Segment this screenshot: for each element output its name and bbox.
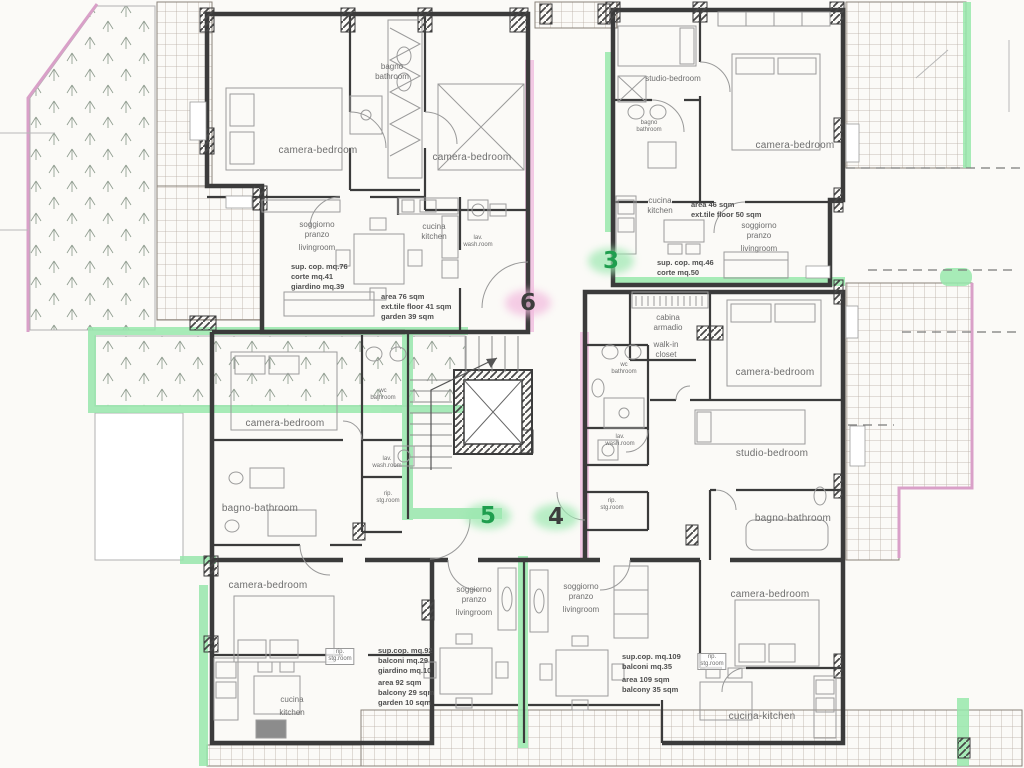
label-bedroom-w: camera-bedroom: [246, 418, 325, 430]
label-storage-w: rip.stg.room: [376, 491, 399, 506]
label-bath-ne: bagnobathroom: [636, 120, 661, 135]
label-living-s-left: soggiornopranzolivingroom: [456, 585, 492, 617]
label-bedroom-e: camera-bedroom: [736, 367, 815, 379]
label-storage-e: rip.stg.room: [600, 498, 623, 513]
label-washroom-w: lav.wash.room: [372, 456, 401, 471]
label-washroom-nw: lav.wash.room: [463, 235, 492, 250]
label-bath-e: bagno-bathroom: [755, 513, 831, 525]
label-studio-ne: studio-bedroom: [645, 74, 701, 84]
unit-badge-4: 4: [548, 504, 564, 530]
label-bedroom-ne: camera-bedroom: [756, 140, 835, 152]
label-bath-nw: bagnobathroom: [375, 62, 409, 82]
label-studio-e: studio-bedroom: [736, 448, 808, 460]
unit-badge-6: 6: [520, 290, 536, 316]
label-living-s-right: soggiornopranzolivingroom: [563, 582, 599, 614]
label-bedroom-se: camera-bedroom: [731, 589, 810, 601]
label-bath-w: bagno-bathroom: [222, 503, 298, 515]
label-living-ne: soggiornopranzolivingroom: [741, 221, 777, 253]
label-stats-nw-en: area 76 sqmext.tile floor 41 sqmgarden 3…: [381, 292, 451, 322]
label-stats-sw-it: sup.cop. mq.92balconi mq.29giardino mq.1…: [378, 646, 433, 676]
label-storage-se: rip.stg.room: [697, 653, 726, 670]
label-bedroom-sw: camera-bedroom: [229, 580, 308, 592]
label-closet-e-it: cabinaarmadio: [654, 313, 683, 333]
label-bedroom-nw-left: camera-bedroom: [279, 145, 358, 157]
label-living-nw: soggiornopranzolivingroom: [299, 220, 335, 252]
label-wc-w: wcbathroom: [370, 388, 395, 403]
unit-badge-5: 5: [480, 503, 496, 529]
label-washroom-e: lav.wash.room: [605, 434, 634, 449]
label-kitchen-se: cucina-kitchen: [729, 711, 796, 723]
label-stats-sw-en: area 92 sqmbalcony 29 sqmgarden 10 sqm: [378, 678, 434, 708]
unit-badge-3: 3: [603, 248, 619, 274]
floor-plan-canvas: camera-bedroombagnobathroomcamera-bedroo…: [0, 0, 1024, 768]
labels-layer: camera-bedroombagnobathroomcamera-bedroo…: [0, 0, 1024, 768]
label-storage-sw: rip.stg.room: [325, 648, 354, 665]
label-bedroom-nw-right: camera-bedroom: [433, 152, 512, 164]
label-stats-ne-en: area 46 sqmext.tile floor 50 sqm: [691, 200, 761, 220]
label-stats-se-it: sup.cop. mq.109balconi mq.35: [622, 652, 681, 672]
label-stats-nw-it: sup. cop. mq.76corte mq.41giardino mq.39: [291, 262, 348, 292]
label-kitchen-sw: cucinakitchen: [279, 695, 304, 718]
label-kitchen-ne: cucinakitchen: [647, 196, 672, 216]
label-kitchen-nw: cucinakitchen: [421, 222, 446, 242]
label-closet-e-en: walk-incloset: [654, 340, 679, 360]
label-stats-se-en: area 109 sqmbalcony 35 sqm: [622, 675, 678, 695]
label-stats-ne-it: sup. cop. mq.46corte mq.50: [657, 258, 714, 278]
label-wc-e: wcbathroom: [611, 362, 636, 377]
